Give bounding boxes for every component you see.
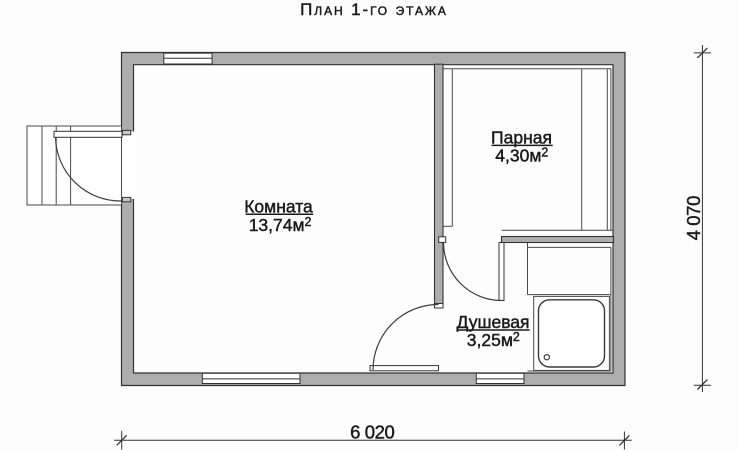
svg-text:13,74м2: 13,74м2 [249, 215, 312, 235]
svg-text:6 020: 6 020 [350, 422, 394, 443]
svg-text:4,30м2: 4,30м2 [495, 146, 548, 166]
svg-text:Парная: Парная [491, 128, 552, 148]
svg-text:План 1-го этажа: План 1-го этажа [300, 0, 448, 19]
svg-text:Комната: Комната [244, 196, 313, 216]
svg-text:4 070: 4 070 [683, 196, 704, 240]
svg-text:3,25м2: 3,25м2 [467, 330, 520, 350]
